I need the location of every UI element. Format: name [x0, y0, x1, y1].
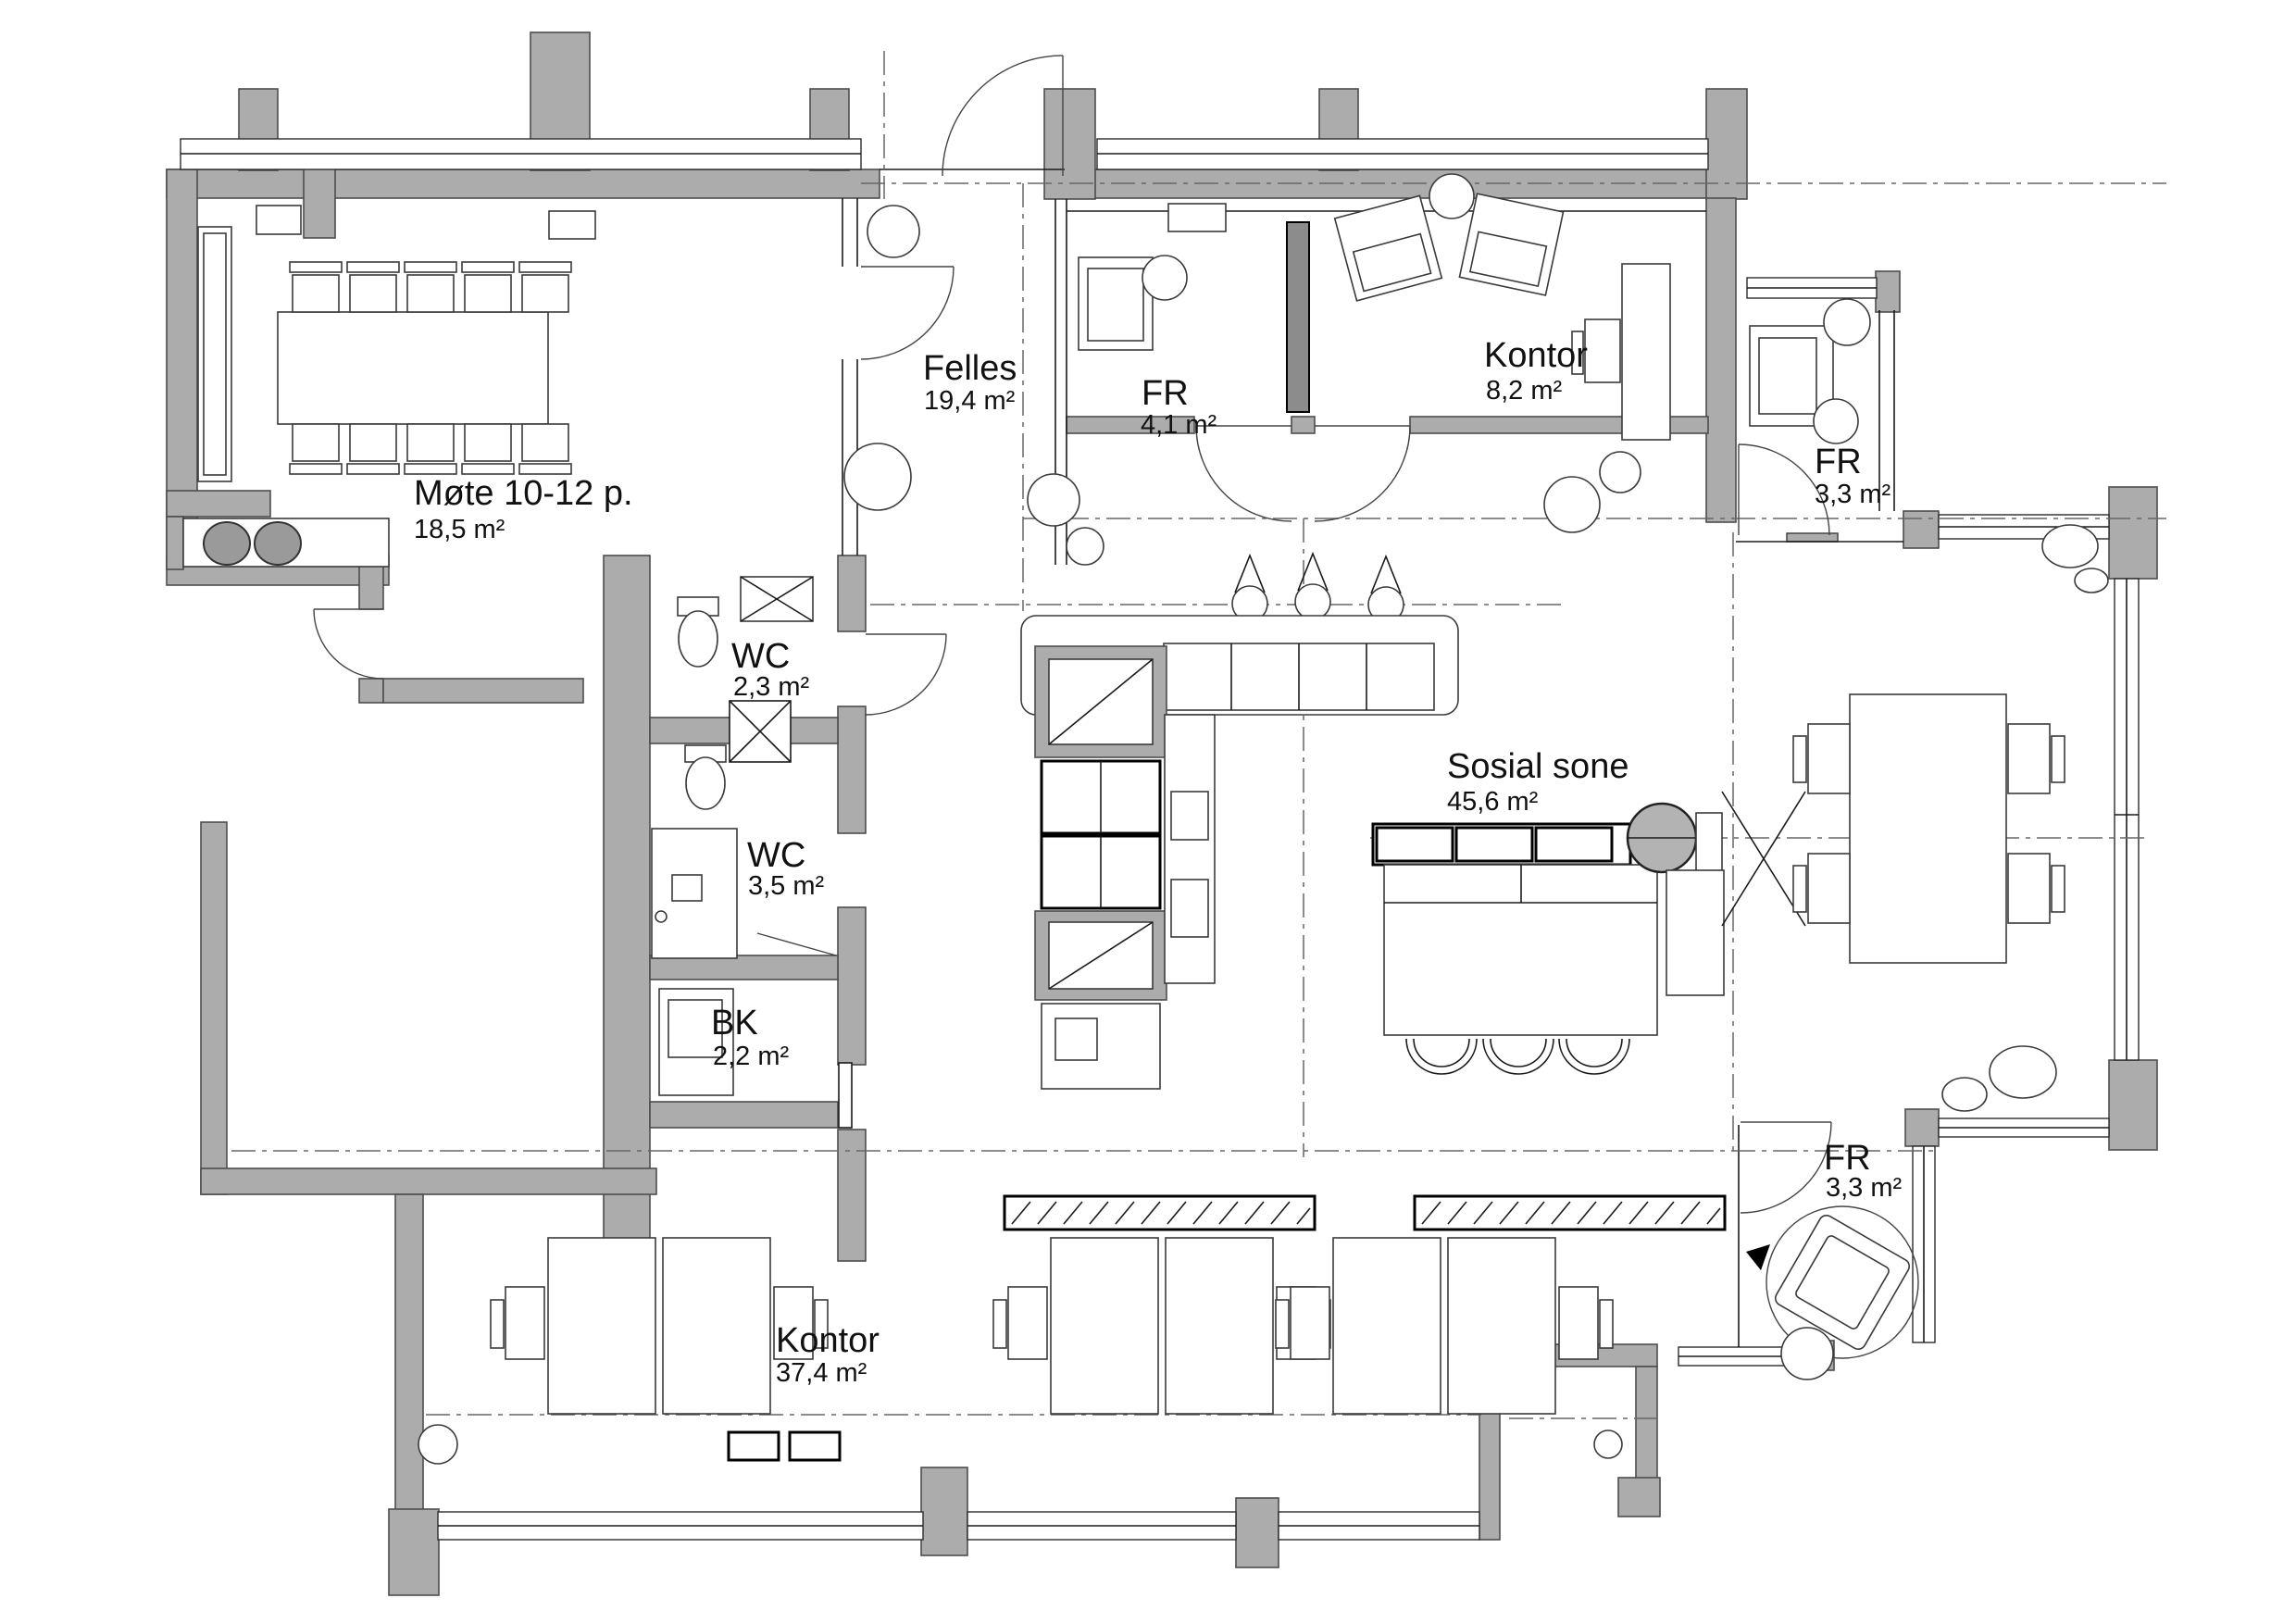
room-area-kontor2: 37,4 m² [776, 1358, 867, 1388]
wc-door-arc [866, 634, 946, 715]
dining-chair [2008, 724, 2050, 793]
floor-box [790, 1432, 840, 1460]
room-label-fr3: FR [1824, 1139, 1871, 1178]
bar-stool [1483, 1039, 1554, 1074]
room-label-mote: Møte 10-12 p. [414, 474, 633, 513]
desk [548, 1238, 655, 1414]
tall-cabinet [1666, 870, 1724, 995]
dining-table [1850, 694, 2006, 963]
whiteboard [1415, 1196, 1725, 1230]
meeting-room-door-arc [861, 267, 954, 359]
floor-plan-canvas: Møte 10-12 p. 18,5 m² Felles 19,4 m² FR … [0, 0, 2296, 1623]
plant [1067, 528, 1104, 565]
side-table [1429, 174, 1474, 218]
bin [255, 522, 301, 565]
desk-chair [505, 1287, 544, 1359]
room-label-fr1: FR [1142, 374, 1189, 413]
desk-chair [1559, 1287, 1598, 1359]
desk [1166, 1238, 1273, 1414]
stair-door-arc [314, 609, 383, 679]
meeting-table [278, 312, 548, 424]
desk [1448, 1238, 1555, 1414]
desk [1051, 1238, 1158, 1414]
bar-stool [1406, 1039, 1477, 1074]
plant [1600, 452, 1641, 493]
room-label-kontor2: Kontor [776, 1321, 880, 1360]
plant [1942, 1078, 1987, 1111]
dining-chair [1808, 724, 1850, 793]
fr-room-door-arc [1196, 426, 1291, 521]
bar-stool [1559, 1039, 1629, 1074]
floor-drain [418, 1425, 457, 1464]
fr-room-right-furniture [1750, 299, 1870, 443]
plant [1824, 299, 1870, 345]
desk-chair [1291, 1287, 1329, 1359]
room-label-wc2: WC [747, 836, 805, 875]
plant [2075, 568, 2108, 593]
plant [2042, 525, 2098, 568]
direction-arrow [1746, 1244, 1770, 1270]
fr-room-top-furniture [1079, 204, 1226, 350]
room-label-bk: BK [711, 1004, 758, 1042]
desk [1622, 264, 1670, 440]
plant [1990, 1046, 2056, 1098]
toilet [679, 611, 717, 667]
pendant-light [1295, 584, 1330, 619]
floor-drain [1594, 1430, 1622, 1458]
bk-door-leaf [839, 1063, 852, 1128]
kitchen [1021, 554, 1805, 1089]
sink [1171, 880, 1208, 937]
room-label-fr2: FR [1815, 443, 1862, 481]
toilet [686, 757, 725, 809]
dining-chair [2008, 854, 2050, 923]
plant [867, 206, 919, 257]
room-label-felles: Felles [923, 349, 1017, 388]
meeting-room-furniture [167, 206, 595, 569]
glass-partition [1287, 222, 1309, 412]
room-area-sosial: 45,6 m² [1447, 787, 1539, 817]
counter-run [1165, 715, 1215, 983]
plant [844, 443, 911, 510]
plant [1544, 477, 1600, 532]
room-label-kontor1: Kontor [1484, 336, 1588, 375]
dining-furniture [1793, 525, 2108, 1111]
dining-chair [1808, 854, 1850, 923]
office-room-door-arc [1315, 426, 1410, 521]
room-area-wc1: 2,3 m² [733, 672, 810, 702]
room-area-fr1: 4,1 m² [1141, 410, 1217, 440]
plant [1814, 399, 1858, 443]
floor-box [729, 1432, 779, 1460]
room-area-fr3: 3,3 m² [1826, 1173, 1903, 1203]
room-area-kontor1: 8,2 m² [1486, 376, 1563, 406]
room-area-felles: 19,4 m² [924, 386, 1016, 416]
room-area-mote: 18,5 m² [414, 515, 505, 544]
desk [1333, 1238, 1441, 1414]
desk-chair [1585, 319, 1620, 382]
desk-chair [1008, 1287, 1047, 1359]
floor-plan-page: Møte 10-12 p. 18,5 m² Felles 19,4 m² FR … [0, 0, 2296, 1623]
sink [672, 875, 702, 901]
room-area-bk: 2,2 m² [713, 1042, 790, 1071]
room-label-sosial: Sosial sone [1447, 747, 1628, 786]
room-area-wc2: 3,5 m² [748, 871, 825, 901]
room-area-fr2: 3,3 m² [1815, 480, 1891, 509]
fr-bottom-door-arc [1741, 1122, 1831, 1213]
desk [663, 1238, 770, 1414]
side-table [1142, 256, 1187, 300]
whiteboard [1004, 1196, 1315, 1230]
room-label-wc1: WC [731, 637, 790, 676]
bin [204, 522, 250, 565]
sink [1171, 792, 1208, 840]
plant [1781, 1328, 1833, 1380]
plant [1028, 474, 1079, 526]
